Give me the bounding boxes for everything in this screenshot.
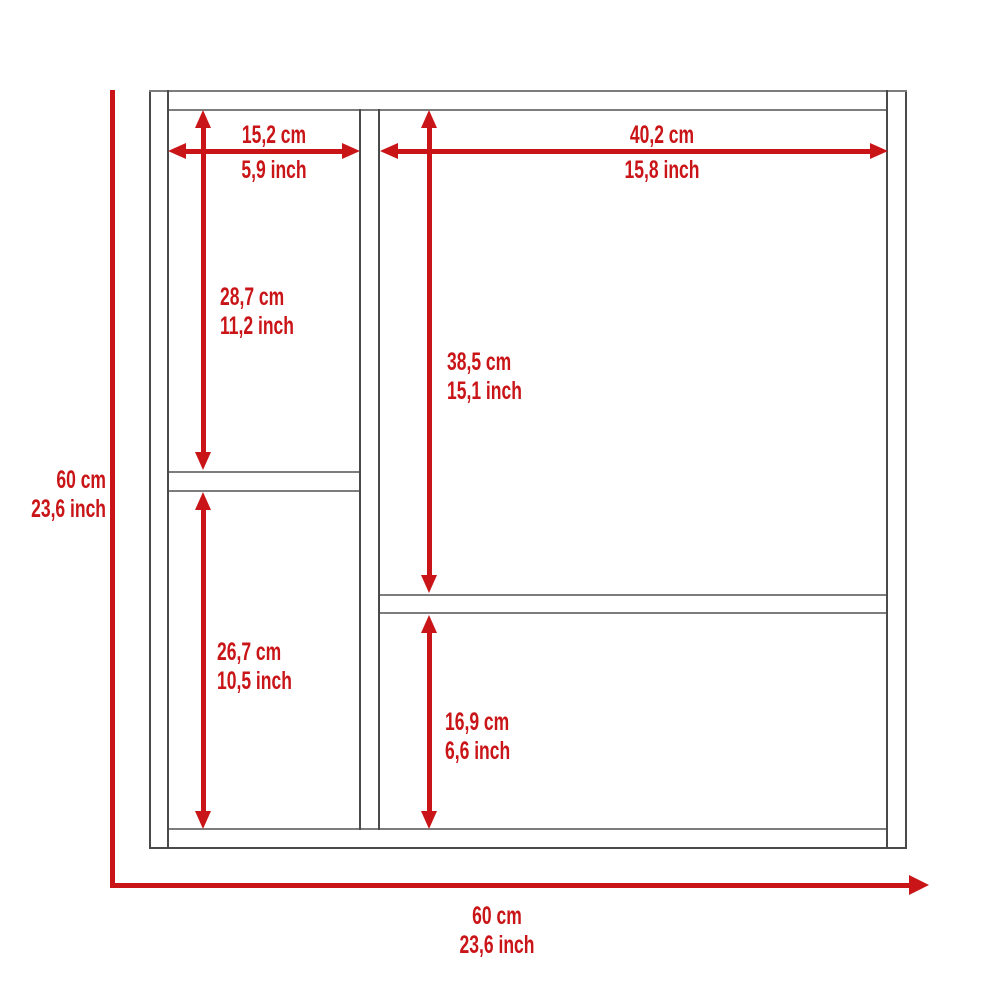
dimension-inch-text: 6,6 inch bbox=[445, 737, 510, 766]
dimension-cm-text: 26,7 cm bbox=[217, 638, 292, 667]
overall-height-label: 60 cm 23,6 inch bbox=[31, 466, 106, 524]
dimension-cm-text: 60 cm bbox=[31, 466, 106, 495]
overall-height-line bbox=[110, 90, 115, 886]
dimension-inch-text: 11,2 inch bbox=[220, 312, 294, 341]
cabinet-dimension-diagram: 15,2 cm 5,9 inch 40,2 cm 15,8 inch 28,7 … bbox=[0, 0, 1000, 1000]
cabinet-inner-left-edge bbox=[167, 90, 169, 847]
arrowhead-right-icon bbox=[870, 143, 888, 159]
left-upper-height-arrow bbox=[195, 110, 211, 470]
left-shelf-top-line bbox=[169, 471, 359, 473]
dimension-inch-text: 23,6 inch bbox=[460, 931, 535, 960]
dimension-cm-text: 60 cm bbox=[460, 902, 535, 931]
left-column-width-inch-label: 5,9 inch bbox=[241, 156, 306, 185]
right-column-width-inch-label: 15,8 inch bbox=[625, 156, 700, 185]
right-shelf-bottom-line bbox=[380, 612, 886, 614]
dimension-inch-text: 10,5 inch bbox=[217, 667, 292, 696]
cabinet-inner-right-edge bbox=[886, 90, 888, 847]
left-upper-height-label: 28,7 cm 11,2 inch bbox=[220, 283, 294, 341]
partition-right-line bbox=[378, 109, 380, 830]
right-upper-height-arrow bbox=[421, 110, 437, 593]
cabinet-outer-top-edge bbox=[149, 90, 907, 92]
arrow-shaft bbox=[427, 628, 432, 816]
arrowhead-down-icon bbox=[195, 811, 211, 829]
left-column-width-cm-label: 15,2 cm bbox=[242, 121, 306, 150]
dimension-cm-text: 38,5 cm bbox=[447, 348, 522, 377]
overall-width-line bbox=[110, 883, 911, 888]
dimension-inch-text: 15,1 inch bbox=[447, 377, 522, 406]
left-lower-height-arrow bbox=[195, 492, 211, 829]
right-shelf-top-line bbox=[380, 594, 886, 596]
overall-width-arrowhead-icon bbox=[909, 875, 929, 895]
right-column-width-cm-label: 40,2 cm bbox=[630, 121, 694, 150]
left-lower-height-label: 26,7 cm 10,5 inch bbox=[217, 638, 292, 696]
cabinet-outer-bottom-edge bbox=[149, 847, 907, 849]
right-lower-height-label: 16,9 cm 6,6 inch bbox=[445, 708, 510, 766]
arrowhead-down-icon bbox=[195, 452, 211, 470]
cabinet-inner-top-edge bbox=[169, 109, 886, 111]
arrow-shaft bbox=[201, 505, 206, 816]
arrow-shaft bbox=[427, 123, 432, 580]
overall-width-label: 60 cm 23,6 inch bbox=[460, 902, 535, 960]
arrowhead-right-icon bbox=[342, 143, 360, 159]
arrowhead-down-icon bbox=[421, 811, 437, 829]
cabinet-outer-right-edge bbox=[905, 90, 907, 849]
arrow-shaft bbox=[201, 123, 206, 457]
right-lower-height-arrow bbox=[421, 615, 437, 829]
dimension-cm-text: 28,7 cm bbox=[220, 283, 294, 312]
partition-left-line bbox=[359, 109, 361, 830]
dimension-cm-text: 16,9 cm bbox=[445, 708, 510, 737]
cabinet-inner-bottom-edge bbox=[169, 828, 886, 830]
right-upper-height-label: 38,5 cm 15,1 inch bbox=[447, 348, 522, 406]
cabinet-outer-left-edge bbox=[149, 90, 151, 849]
arrowhead-down-icon bbox=[421, 575, 437, 593]
dimension-inch-text: 23,6 inch bbox=[31, 495, 106, 524]
